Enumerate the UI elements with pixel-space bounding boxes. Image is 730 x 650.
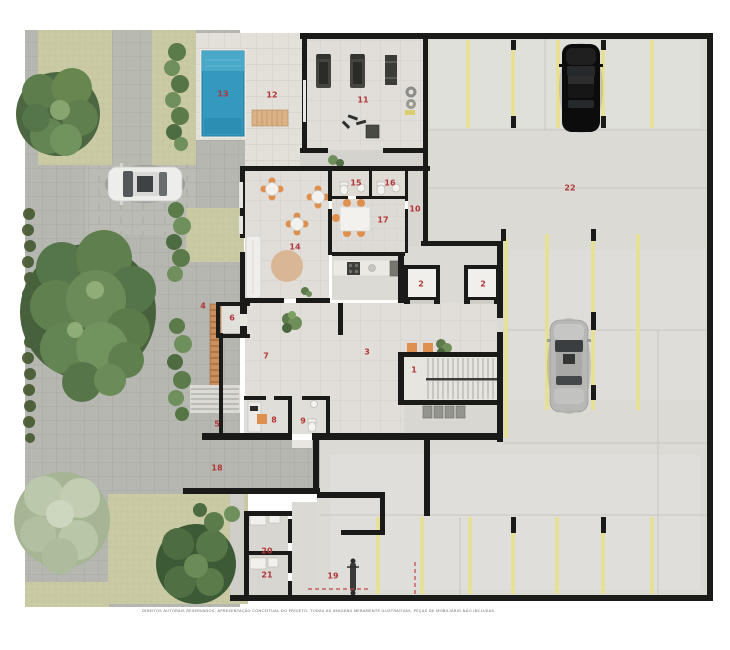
tree xyxy=(16,68,100,156)
window xyxy=(239,216,243,234)
window xyxy=(239,182,243,208)
weight-machine xyxy=(385,55,397,85)
monitor xyxy=(250,406,258,411)
sink xyxy=(392,184,400,192)
deck-pavers xyxy=(196,140,245,168)
floor-plan-rendering xyxy=(0,0,730,650)
swimming-pool xyxy=(200,49,246,138)
weight-plate-hole xyxy=(409,102,413,106)
lawn-front xyxy=(186,208,244,262)
sun-lounger xyxy=(252,110,288,126)
elevator-cab xyxy=(468,269,496,297)
bench xyxy=(407,343,417,353)
elevator-sill xyxy=(410,300,434,304)
elevator-lobby-floor xyxy=(404,246,497,267)
gym-mat xyxy=(405,110,415,115)
elevator-sill xyxy=(470,300,494,304)
outdoor-stairs-5 xyxy=(190,385,240,413)
room19-floor xyxy=(292,502,317,595)
bench xyxy=(423,343,433,353)
window xyxy=(303,80,306,122)
round-rug xyxy=(271,250,303,282)
treadmill xyxy=(316,54,331,88)
stairs-1 xyxy=(404,357,503,400)
kitchen xyxy=(333,260,404,276)
toilet xyxy=(340,185,348,195)
terrace-18 xyxy=(130,440,320,493)
fixture xyxy=(268,558,278,567)
weight-rack xyxy=(366,125,379,138)
stove xyxy=(347,262,360,275)
sofa xyxy=(246,236,261,298)
fixture xyxy=(250,558,266,569)
floor-plan-stage: 131211221516101714224673158918202119 DIR… xyxy=(0,0,730,650)
entrance-step xyxy=(292,440,312,448)
sink xyxy=(311,401,318,408)
white-car xyxy=(105,163,185,205)
silver-car xyxy=(547,318,591,414)
elevator-cab xyxy=(408,269,436,297)
toilet xyxy=(377,185,385,195)
tree xyxy=(156,524,236,604)
lawn-corner xyxy=(25,582,109,607)
weight-plate-hole xyxy=(409,90,414,95)
sink xyxy=(357,184,365,192)
toilet xyxy=(308,422,316,432)
caption: DIREITOS AUTORAIS RESERVADOS. APRESENTAÇ… xyxy=(142,609,496,613)
treadmill xyxy=(350,54,365,88)
kitchen-sink xyxy=(369,265,376,272)
corridor-floor xyxy=(408,171,423,255)
desk-chair xyxy=(257,414,267,424)
dining-table xyxy=(340,207,370,231)
black-car xyxy=(559,43,603,133)
door-opening xyxy=(242,314,247,326)
garden-path xyxy=(112,30,152,165)
